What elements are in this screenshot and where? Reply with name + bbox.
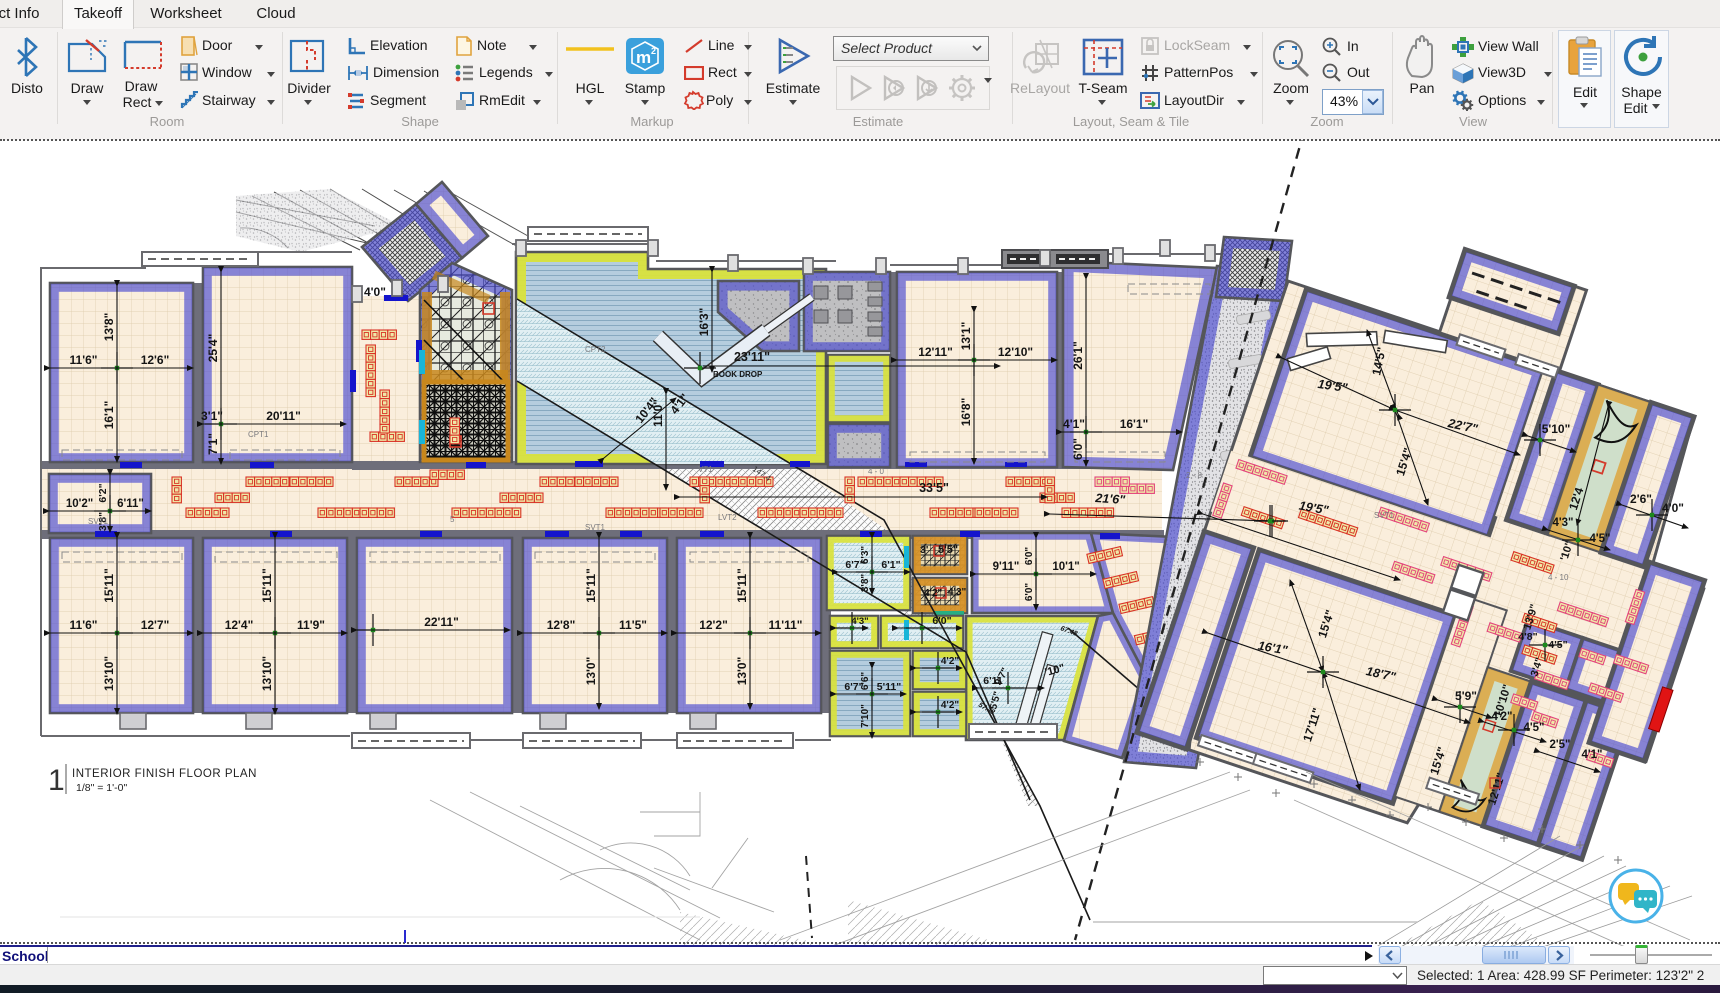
svg-text:2: 2 <box>651 46 656 56</box>
svg-text:12'2": 12'2" <box>699 618 728 632</box>
svg-text:INTERIOR FINISH FLOOR PLAN: INTERIOR FINISH FLOOR PLAN <box>72 768 257 780</box>
svg-text:CPT1: CPT1 <box>248 430 269 439</box>
svg-text:LVT2: LVT2 <box>718 513 737 522</box>
svg-text:5'10": 5'10" <box>1542 422 1571 436</box>
svg-text:12'8": 12'8" <box>547 618 576 632</box>
svg-text:4'3": 4'3" <box>851 616 868 627</box>
svg-text:16'8": 16'8" <box>959 398 973 427</box>
svg-text:12'10": 12'10" <box>998 345 1033 359</box>
svg-text:6'2": 6'2" <box>97 483 109 502</box>
svg-text:SVT1: SVT1 <box>1374 511 1395 520</box>
svg-text:15'11": 15'11" <box>584 568 598 603</box>
svg-text:13'0": 13'0" <box>584 657 598 686</box>
svg-text:15'11": 15'11" <box>102 568 116 603</box>
svg-text:6'6": 6'6" <box>860 672 871 691</box>
svg-text:4'1": 4'1" <box>1582 749 1603 761</box>
svg-text:4'5": 4'5" <box>1524 722 1545 734</box>
svg-text:6'0": 6'0" <box>1024 583 1035 602</box>
svg-text:7'1": 7'1" <box>206 433 220 455</box>
svg-text:SVT1: SVT1 <box>88 517 109 526</box>
svg-text:6'0": 6'0" <box>1024 547 1035 566</box>
svg-text:15'11": 15'11" <box>260 568 274 603</box>
svg-text:11'11": 11'11" <box>769 618 803 632</box>
svg-text:13'1": 13'1" <box>959 322 973 351</box>
svg-text:4'8": 4'8" <box>1518 631 1537 643</box>
svg-text:m: m <box>636 48 651 67</box>
svg-text:15'11": 15'11" <box>735 568 749 603</box>
svg-text:2 - 8: 2 - 8 <box>1186 471 1203 480</box>
svg-text:4 - 0: 4 - 0 <box>868 467 885 476</box>
svg-text:10'2": 10'2" <box>66 498 93 510</box>
svg-text:10'1": 10'1" <box>1052 561 1079 573</box>
svg-text:5'11": 5'11" <box>877 681 901 693</box>
svg-text:2'5": 2'5" <box>1550 739 1571 751</box>
svg-text:13'0": 13'0" <box>735 657 749 686</box>
svg-text:7'10": 7'10" <box>860 704 871 728</box>
svg-text:21'6": 21'6" <box>1094 491 1127 507</box>
svg-text:11'5": 11'5" <box>619 618 647 632</box>
svg-text:5: 5 <box>450 515 455 524</box>
svg-text:3': 3' <box>920 544 928 556</box>
svg-text:6'0": 6'0" <box>1071 438 1085 460</box>
svg-text:4'0": 4'0" <box>1662 501 1684 515</box>
svg-text:12'7": 12'7" <box>141 618 170 632</box>
svg-text:25'4": 25'4" <box>206 334 220 363</box>
svg-text:VT1: VT1 <box>698 465 713 474</box>
svg-text:23'11": 23'11" <box>734 350 770 364</box>
svg-text:9'11": 9'11" <box>993 561 1020 573</box>
svg-text:11'9": 11'9" <box>297 618 325 632</box>
svg-text:5'5": 5'5" <box>938 544 958 556</box>
svg-text:6'1": 6'1" <box>881 559 900 571</box>
svg-text:13'10": 13'10" <box>102 656 116 691</box>
svg-text:22'11": 22'11" <box>424 615 459 629</box>
svg-text:SVT1: SVT1 <box>585 523 606 532</box>
svg-text:1/8" = 1'-0": 1/8" = 1'-0" <box>76 782 127 794</box>
svg-text:13'8": 13'8" <box>102 313 116 342</box>
svg-text:4'2": 4'2" <box>924 588 943 599</box>
svg-text:20'11": 20'11" <box>266 409 301 423</box>
svg-text:4'2": 4'2" <box>941 700 960 711</box>
svg-text:6'11": 6'11" <box>117 498 144 510</box>
svg-text:16'1": 16'1" <box>102 401 116 430</box>
svg-text:4'2": 4'2" <box>941 656 960 667</box>
svg-text:1: 1 <box>48 764 65 797</box>
svg-text:6'3": 6'3" <box>860 546 871 565</box>
svg-text:4 - 10: 4 - 10 <box>1548 573 1569 582</box>
svg-text:11'6": 11'6" <box>70 353 98 367</box>
svg-text:16'1": 16'1" <box>1120 417 1149 431</box>
svg-text:12'11": 12'11" <box>918 345 953 359</box>
svg-text:4'3": 4'3" <box>948 587 967 598</box>
svg-text:13'10": 13'10" <box>260 656 274 691</box>
svg-text:11'6": 11'6" <box>70 618 98 632</box>
svg-text:CPT2: CPT2 <box>585 345 606 354</box>
svg-text:4'5": 4'5" <box>1590 533 1611 545</box>
svg-text:12'6": 12'6" <box>141 353 170 367</box>
svg-text:5'9": 5'9" <box>1455 689 1477 703</box>
svg-text:4'1": 4'1" <box>1063 417 1085 431</box>
svg-text:12'4": 12'4" <box>225 618 254 632</box>
svg-text:33'5": 33'5" <box>919 481 949 495</box>
svg-text:3'8": 3'8" <box>860 574 871 593</box>
svg-text:3'1": 3'1" <box>201 409 223 423</box>
svg-text:6'0": 6'0" <box>932 615 951 627</box>
svg-text:2'6": 2'6" <box>1630 492 1652 506</box>
svg-text:4'0": 4'0" <box>364 285 386 299</box>
svg-text:26'1": 26'1" <box>1071 341 1085 370</box>
svg-text:4'3": 4'3" <box>1553 517 1574 529</box>
svg-text:16'3": 16'3" <box>697 308 711 337</box>
svg-text:BOOK DROP: BOOK DROP <box>713 370 763 379</box>
